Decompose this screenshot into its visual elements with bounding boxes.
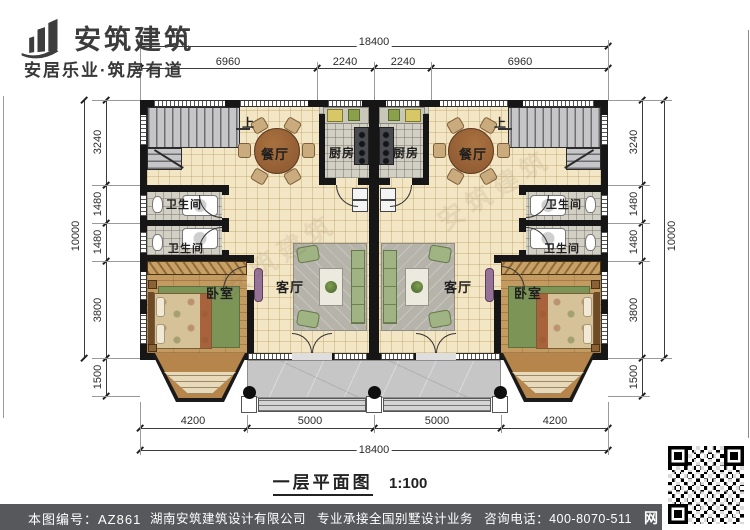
window <box>140 115 147 145</box>
bed-blanket <box>537 294 548 348</box>
footer-bar: 本图编号：AZ861 湖南安筑建筑设计有限公司 专业承接全国别墅设计业务 咨询电… <box>0 504 750 530</box>
kitchen-bottom-wall <box>374 178 390 185</box>
sofa <box>383 250 397 324</box>
dim-label: 4200 <box>179 415 207 427</box>
bath-side-wall <box>519 185 526 195</box>
tv-cabinet <box>485 268 494 302</box>
qr-finder <box>724 446 744 466</box>
drawing-title: 一层平面图 <box>273 473 373 496</box>
staircase <box>147 107 240 148</box>
window <box>440 100 508 107</box>
extension-line <box>608 402 609 455</box>
dim-label: 1480 <box>628 190 640 218</box>
kitchen-basket <box>388 109 400 121</box>
staircase <box>508 107 601 148</box>
window <box>240 100 308 107</box>
staircase-lower-run <box>566 148 601 170</box>
bath-side-wall <box>519 218 526 232</box>
kitchen-sink <box>405 109 421 122</box>
brand-header: 安筑建筑 安居乐业·筑房有道 <box>20 12 280 82</box>
room-label-dining: 餐厅 <box>459 144 487 163</box>
extension-line <box>3 96 4 418</box>
kitchen-side-wall <box>423 114 429 178</box>
bed-headboard <box>148 292 154 350</box>
window <box>140 232 147 253</box>
kitchen-sink <box>327 109 343 122</box>
dim-line-left-chain <box>106 100 107 396</box>
extension-line <box>247 415 248 433</box>
extension-line <box>608 396 650 397</box>
stove <box>379 127 394 165</box>
footer-info: 湖南安筑建筑设计有限公司 专业承接全国别墅设计业务 咨询电话：400-8070-… <box>150 504 632 530</box>
room-label-kitchen: 厨房 <box>329 144 355 161</box>
dining-chair <box>497 143 510 158</box>
window <box>601 195 608 216</box>
bedroom-side-wall <box>494 290 501 353</box>
room-label-bedroom: 卧室 <box>206 283 234 302</box>
entry-door-opening <box>292 353 332 360</box>
dim-label: 1480 <box>628 228 640 256</box>
extension-line <box>92 223 140 224</box>
extension-line <box>92 358 140 359</box>
room-label-living: 客厅 <box>276 277 304 296</box>
room-label-bathroom: 卫生间 <box>166 196 202 212</box>
nightstand <box>591 280 600 289</box>
dining-chair <box>238 143 251 158</box>
dim-label: 10000 <box>70 219 82 254</box>
bed-blanket <box>200 294 211 348</box>
bath-divider-wall <box>147 220 222 226</box>
kitchen-basket <box>348 109 360 121</box>
extension-line <box>92 261 140 262</box>
stair-up-label: 上 <box>494 114 506 131</box>
window <box>334 353 367 360</box>
dim-label: 3240 <box>92 128 104 156</box>
dining-chair <box>302 143 315 158</box>
dim-label: 1480 <box>92 190 104 218</box>
kitchen-bottom-wall <box>319 178 336 185</box>
window <box>386 100 420 107</box>
tv-cabinet <box>254 268 263 302</box>
brand-logo-icon <box>20 14 70 62</box>
hall-bath-wall <box>519 185 608 192</box>
bedroom-side-wall <box>247 290 254 353</box>
hall-bath-wall <box>140 185 229 192</box>
nightstand <box>148 280 157 289</box>
dim-label: 1480 <box>92 228 104 256</box>
dim-label: 1500 <box>92 363 104 391</box>
bed-pillow <box>583 297 592 317</box>
potted-plant <box>411 281 423 293</box>
dim-label: 2240 <box>389 56 417 68</box>
stove <box>354 127 369 165</box>
window <box>140 272 147 300</box>
dim-line-left-overall <box>84 100 85 358</box>
extension-line <box>608 40 609 100</box>
extension-line <box>92 396 140 397</box>
room-label-bedroom: 卧室 <box>514 283 542 302</box>
toilet <box>585 234 596 251</box>
brand-name: 安筑建筑 <box>74 18 194 57</box>
phone-text: 咨询电话：400-8070-511 <box>484 508 632 527</box>
floor-plan-sheet: 安筑建筑 安居乐业·筑房有道 安筑建筑 安筑建筑 18400 6960 2240… <box>0 0 750 530</box>
dim-label: 3240 <box>628 128 640 156</box>
company-name: 湖南安筑建筑设计有限公司 <box>150 508 306 527</box>
qr-finder <box>668 446 688 466</box>
dim-label: 4200 <box>541 415 569 427</box>
dim-label: 3800 <box>92 296 104 324</box>
bath-divider-wall <box>526 220 601 226</box>
entry-door-opening <box>416 353 456 360</box>
dim-line-right-overall <box>664 100 665 358</box>
toilet <box>152 234 163 251</box>
extension-line <box>608 223 650 224</box>
window <box>381 353 414 360</box>
dim-label: 1500 <box>628 363 640 391</box>
dining-chair <box>433 143 446 158</box>
bed-pillow <box>156 324 165 344</box>
nightstand <box>148 344 157 352</box>
dim-label: 5000 <box>423 415 451 427</box>
room-label-bathroom: 卫生间 <box>544 240 580 256</box>
extension-line <box>92 100 140 101</box>
window <box>456 353 500 360</box>
nightstand <box>591 344 600 352</box>
drawing-scale: 1:100 <box>389 475 427 492</box>
window <box>601 115 608 145</box>
extension-line <box>501 415 502 433</box>
party-wall <box>374 100 379 360</box>
window <box>601 314 608 344</box>
stair-up-label: 上 <box>242 114 254 131</box>
window <box>601 272 608 300</box>
sofa <box>351 250 365 324</box>
unit-right: 上 <box>374 100 608 402</box>
room-label-bathroom: 卫生间 <box>168 240 204 256</box>
bath-side-wall <box>222 250 229 261</box>
window <box>154 100 225 107</box>
dim-line-right-chain <box>642 100 643 396</box>
extension-line <box>431 62 432 100</box>
bed-pillow <box>583 324 592 344</box>
room-label-kitchen: 厨房 <box>393 144 419 161</box>
room-label-bathroom: 卫生间 <box>546 196 582 212</box>
kitchen-bottom-wall <box>358 178 374 185</box>
extension-line <box>374 415 375 433</box>
window <box>328 100 362 107</box>
dim-tick <box>80 354 87 361</box>
brand-tagline: 安居乐业·筑房有道 <box>24 56 184 81</box>
dim-label: 18400 <box>357 36 392 48</box>
extension-line <box>608 261 650 262</box>
extension-line <box>608 100 672 101</box>
dim-label: 6960 <box>506 56 534 68</box>
room-label-dining: 餐厅 <box>261 144 289 163</box>
bath-side-wall <box>222 185 229 195</box>
toilet <box>585 196 596 213</box>
drawing-title-block: 一层平面图 1:100 <box>0 468 700 493</box>
qr-finder <box>668 504 688 524</box>
dim-label: 10000 <box>666 219 678 254</box>
bath-side-wall <box>222 218 229 232</box>
room-label-living: 客厅 <box>444 277 472 296</box>
bed-headboard <box>594 292 600 350</box>
extension-line <box>374 62 375 100</box>
potted-plant <box>325 281 337 293</box>
sheet-number: 本图编号：AZ861 <box>28 509 141 528</box>
window <box>248 353 292 360</box>
extension-line <box>92 185 140 186</box>
extension-line <box>140 402 141 455</box>
kitchen-side-wall <box>319 114 325 178</box>
window <box>140 195 147 216</box>
extension-line <box>608 185 650 186</box>
window <box>601 232 608 253</box>
qr-code <box>662 440 750 530</box>
bedroom-side-wall <box>494 255 501 263</box>
unit-left: 上 <box>140 100 374 402</box>
staircase-lower-run <box>147 148 182 170</box>
extension-line <box>317 62 318 100</box>
window <box>140 314 147 344</box>
web-char: 网 <box>644 508 658 528</box>
extension-line <box>608 358 672 359</box>
bedroom-side-wall <box>247 255 254 263</box>
dim-label: 2240 <box>331 56 359 68</box>
bath-side-wall <box>519 250 526 261</box>
dim-label: 3800 <box>628 296 640 324</box>
sheet-edge-line <box>748 30 749 438</box>
toilet <box>152 196 163 213</box>
dim-label: 5000 <box>296 415 324 427</box>
service-text: 专业承接全国别墅设计业务 <box>317 508 473 527</box>
dim-label: 18400 <box>357 444 392 456</box>
kitchen-bottom-wall <box>412 178 429 185</box>
window <box>523 100 594 107</box>
bed-pillow <box>156 297 165 317</box>
